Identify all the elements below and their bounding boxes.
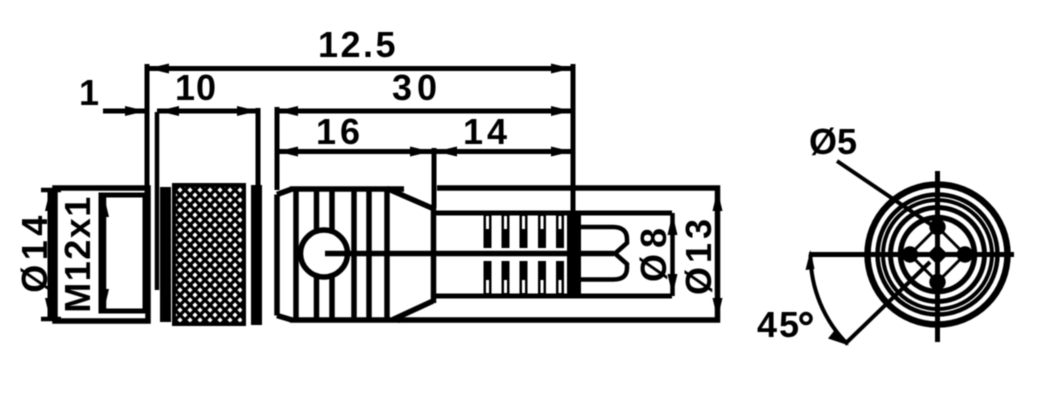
svg-text:Ø8: Ø8 <box>633 222 674 282</box>
svg-text:45: 45 <box>757 304 801 345</box>
svg-text:M12x1: M12x1 <box>57 195 98 313</box>
svg-text:Ø13: Ø13 <box>678 215 719 295</box>
svg-text:10: 10 <box>175 67 217 108</box>
svg-text:1: 1 <box>79 72 99 113</box>
svg-text:16: 16 <box>316 111 364 152</box>
svg-text:12.5: 12.5 <box>318 24 398 65</box>
svg-text:30: 30 <box>392 67 442 108</box>
svg-text:14: 14 <box>463 111 511 152</box>
svg-text:Ø5: Ø5 <box>809 121 857 162</box>
